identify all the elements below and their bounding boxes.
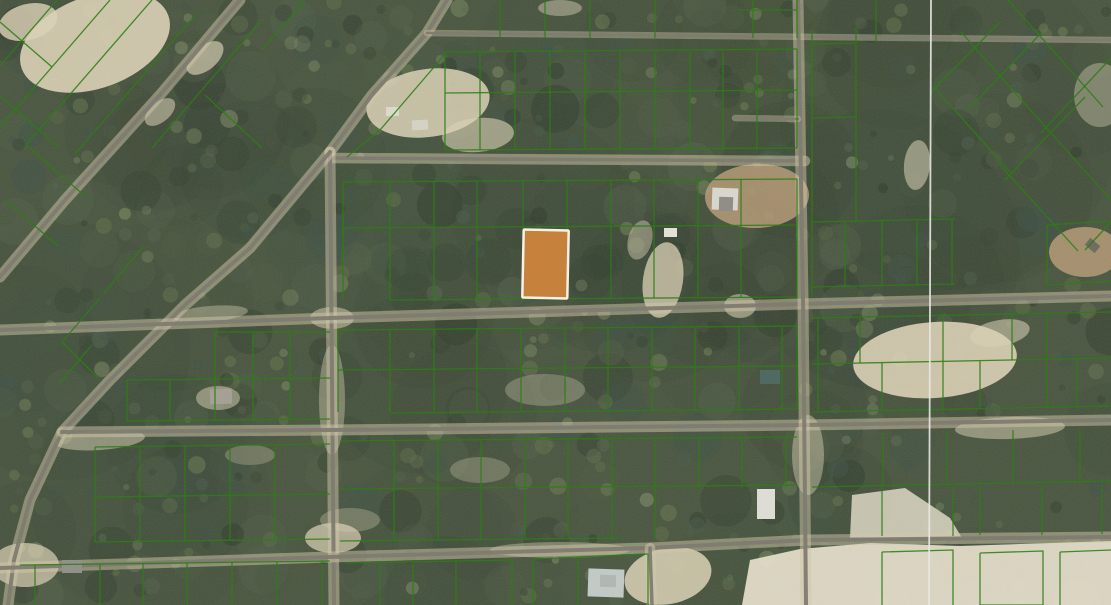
parcel-map-canvas[interactable]	[0, 0, 1111, 605]
grain-overlay	[0, 0, 1111, 605]
map-viewport[interactable]	[0, 0, 1111, 605]
highlighted-parcel[interactable]	[522, 230, 568, 299]
